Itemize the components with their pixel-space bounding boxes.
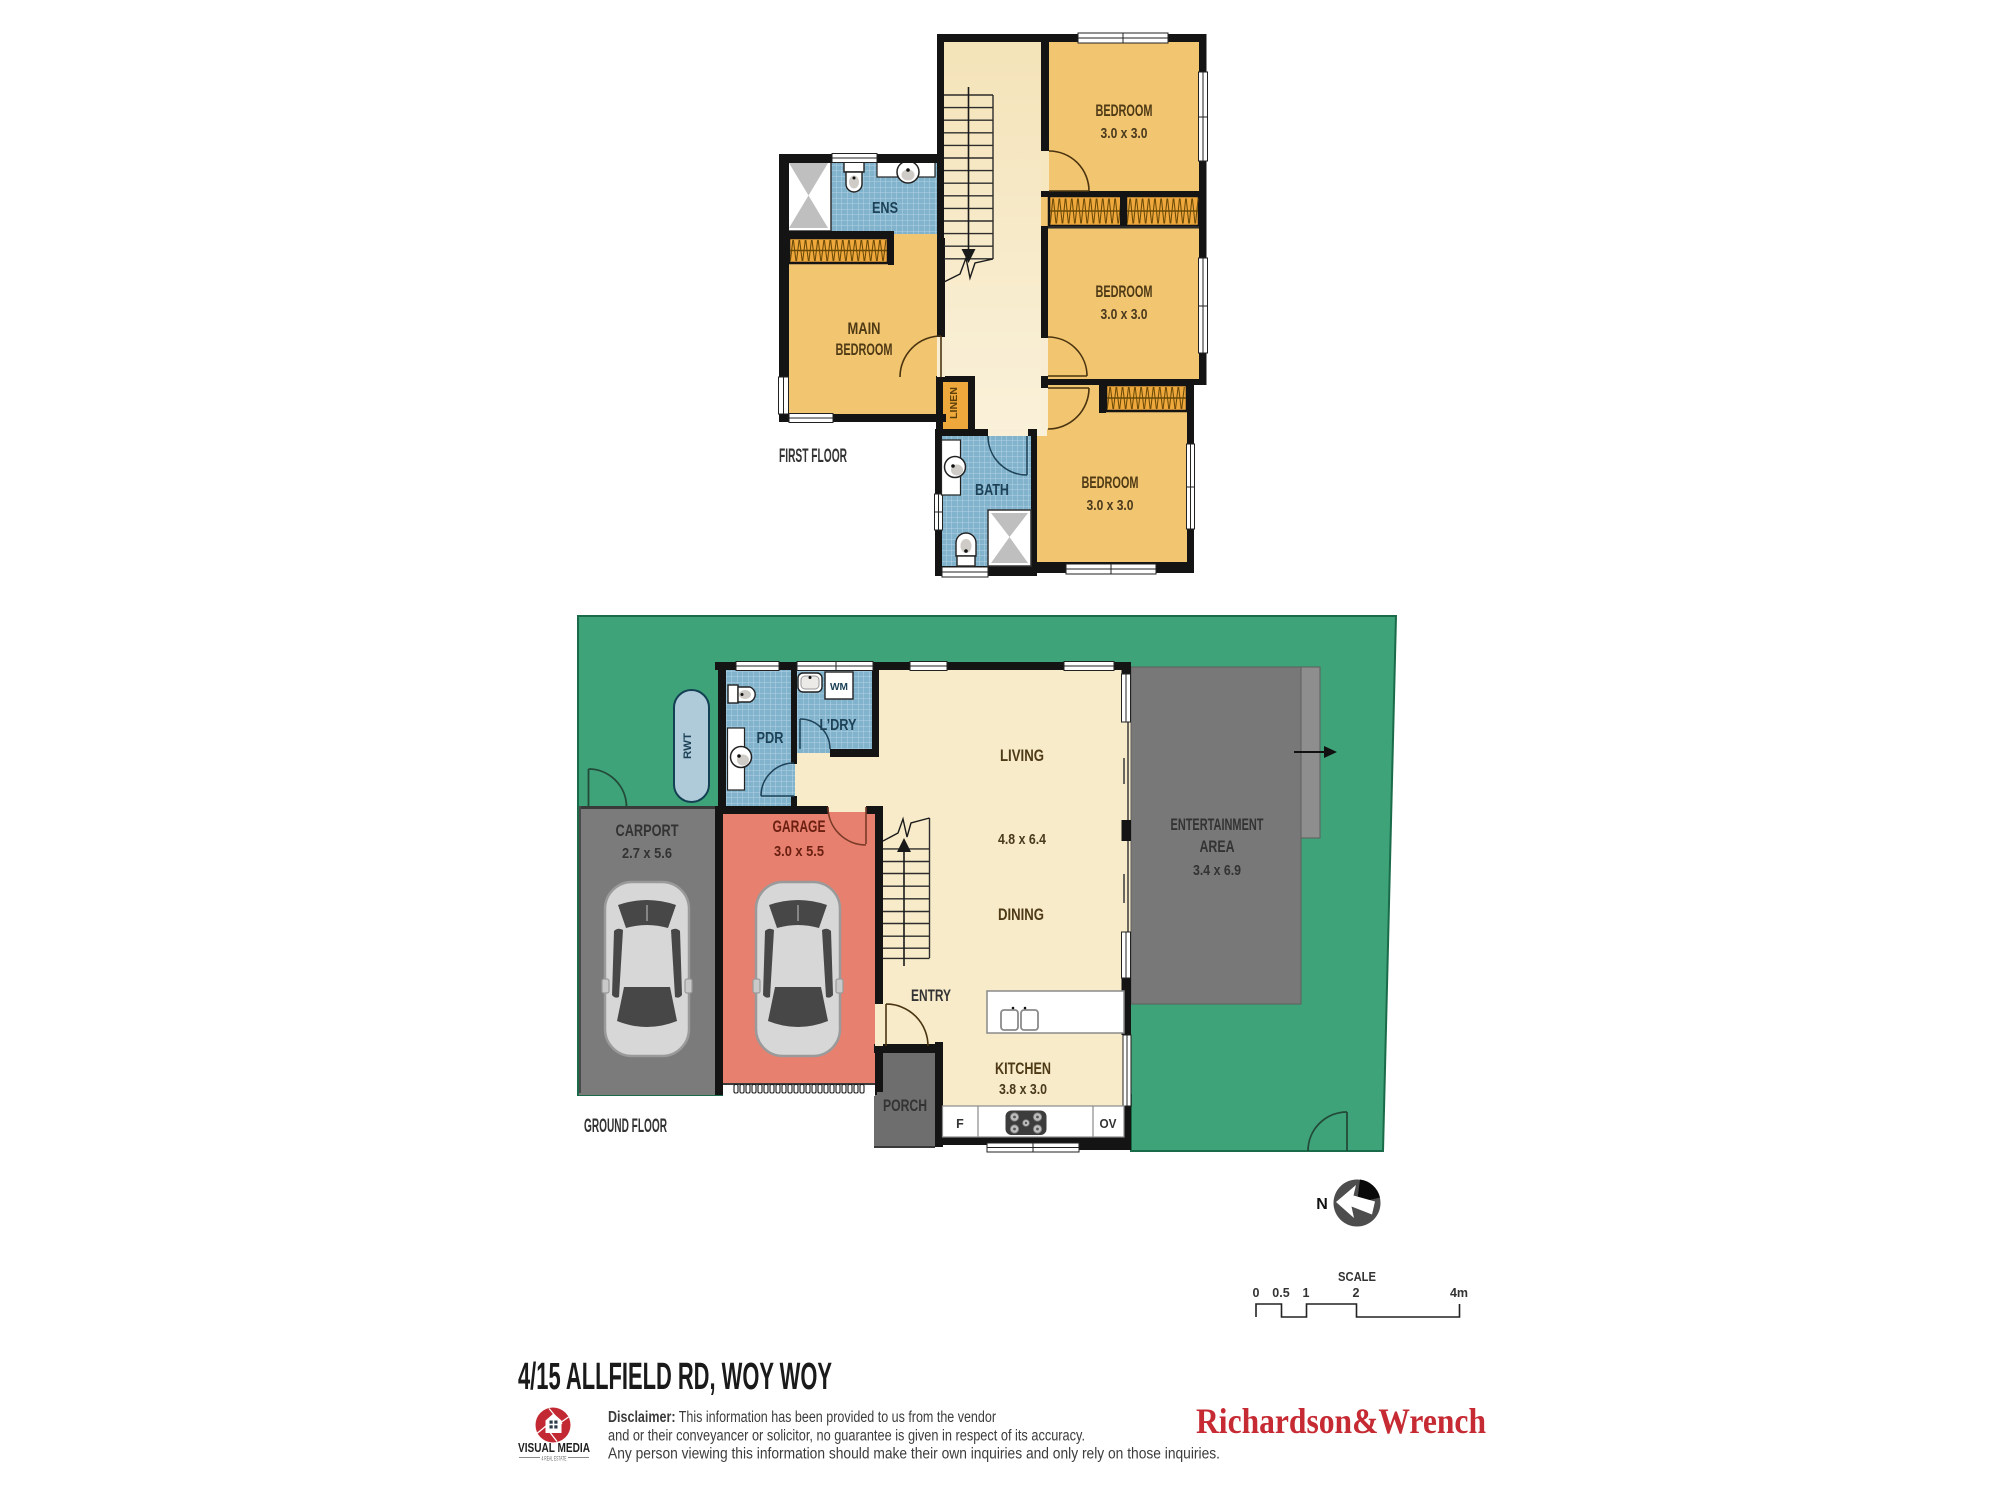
svg-text:4.8 x 6.4: 4.8 x 6.4: [998, 831, 1047, 848]
svg-text:3.4 x 6.9: 3.4 x 6.9: [1193, 862, 1241, 879]
svg-text:2.7 x 5.6: 2.7 x 5.6: [622, 845, 672, 862]
svg-text:and or their conveyancer or so: and or their conveyancer or solicitor, n…: [608, 1428, 1085, 1445]
svg-text:Richardson&Wrench: Richardson&Wrench: [1196, 1401, 1486, 1441]
svg-text:1: 1: [1303, 1286, 1310, 1300]
svg-text:AREA: AREA: [1200, 838, 1235, 856]
svg-text:VISUAL MEDIA: VISUAL MEDIA: [518, 1441, 590, 1455]
svg-text:PDR: PDR: [757, 730, 784, 747]
svg-text:KITCHEN: KITCHEN: [995, 1060, 1051, 1078]
svg-text:3.8 x 3.0: 3.8 x 3.0: [999, 1081, 1047, 1098]
svg-text:ENTERTAINMENT: ENTERTAINMENT: [1171, 816, 1264, 834]
svg-text:LIVING: LIVING: [1000, 747, 1044, 765]
svg-text:DINING: DINING: [998, 906, 1044, 924]
svg-text:L’DRY: L’DRY: [820, 717, 858, 734]
svg-text:Disclaimer: This information h: Disclaimer: This information has been pr…: [608, 1409, 996, 1426]
svg-text:BEDROOM: BEDROOM: [1096, 102, 1153, 120]
svg-text:BATH: BATH: [975, 482, 1009, 499]
svg-text:ENTRY: ENTRY: [911, 987, 951, 1005]
svg-text:FIRST FLOOR: FIRST FLOOR: [779, 446, 847, 467]
svg-text:3.0 x 3.0: 3.0 x 3.0: [1101, 306, 1148, 323]
svg-text:0.5: 0.5: [1272, 1286, 1289, 1300]
svg-text:MAIN: MAIN: [848, 320, 881, 338]
svg-text:LINEN: LINEN: [949, 387, 960, 419]
svg-text:2: 2: [1353, 1286, 1360, 1300]
svg-text:3.0 x 3.0: 3.0 x 3.0: [1101, 125, 1148, 142]
svg-text:GROUND FLOOR: GROUND FLOOR: [584, 1116, 667, 1137]
svg-text:CARPORT: CARPORT: [616, 822, 679, 840]
svg-text:3.0 x 5.5: 3.0 x 5.5: [774, 843, 824, 860]
svg-text:GARAGE: GARAGE: [773, 818, 826, 836]
svg-text:ENS: ENS: [872, 200, 898, 217]
svg-text:WM: WM: [830, 682, 848, 693]
svg-text:0: 0: [1253, 1286, 1260, 1300]
svg-text:SCALE: SCALE: [1338, 1270, 1376, 1284]
svg-text:BEDROOM: BEDROOM: [1082, 474, 1139, 492]
svg-text:4/15 ALLFIELD RD, WOY WOY: 4/15 ALLFIELD RD, WOY WOY: [518, 1356, 832, 1398]
svg-text:3.0 x 3.0: 3.0 x 3.0: [1087, 497, 1134, 514]
svg-text:F: F: [956, 1117, 964, 1131]
svg-text:N: N: [1316, 1196, 1328, 1213]
svg-text:4 REAL ESTATE: 4 REAL ESTATE: [542, 1456, 567, 1463]
svg-text:PORCH: PORCH: [883, 1097, 927, 1115]
svg-text:BEDROOM: BEDROOM: [1096, 283, 1153, 301]
svg-text:Any person viewing this inform: Any person viewing this information shou…: [608, 1446, 1220, 1463]
svg-text:OV: OV: [1100, 1117, 1118, 1131]
svg-text:BEDROOM: BEDROOM: [836, 341, 893, 359]
svg-text:RWT: RWT: [682, 733, 694, 759]
svg-text:4m: 4m: [1450, 1286, 1468, 1300]
